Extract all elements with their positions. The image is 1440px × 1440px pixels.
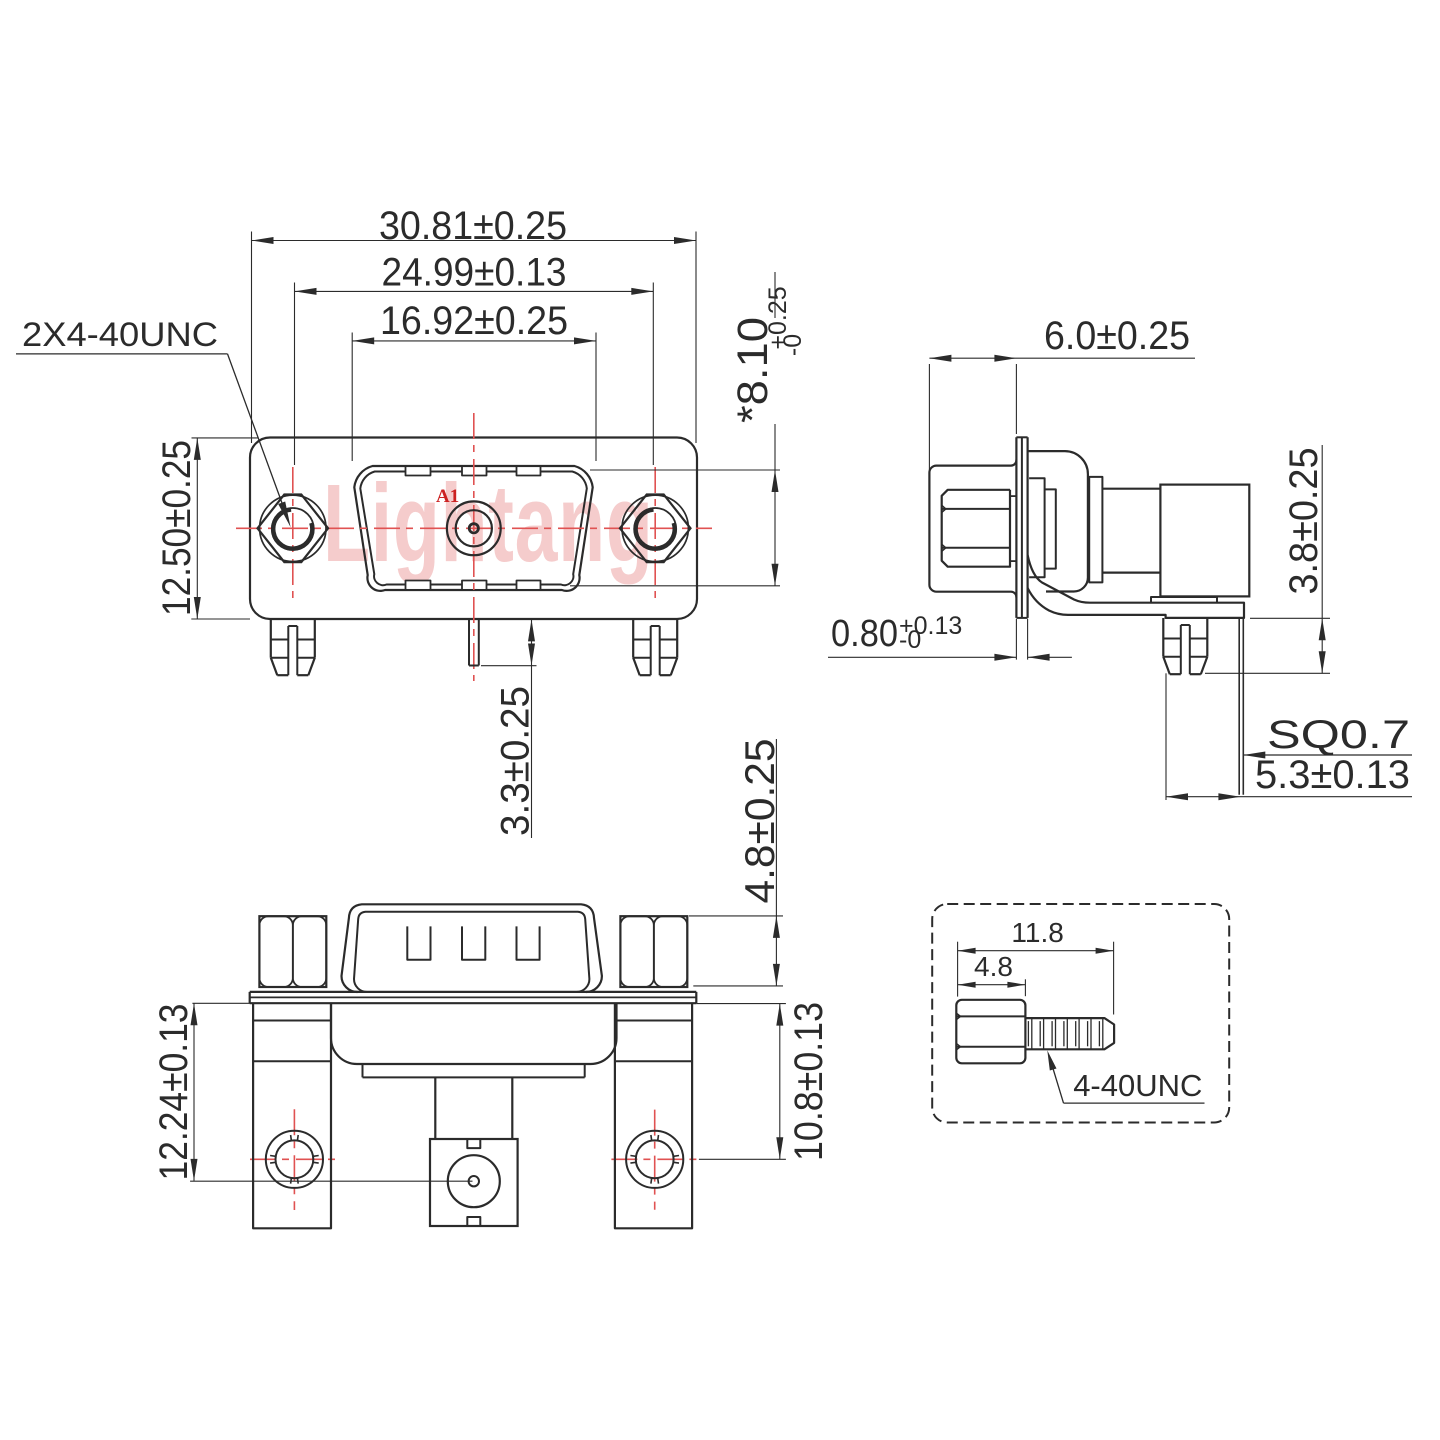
svg-text:-0: -0 <box>779 334 807 356</box>
svg-text:A1: A1 <box>436 486 459 507</box>
svg-text:16.92±0.25: 16.92±0.25 <box>380 299 568 343</box>
svg-text:0.80: 0.80 <box>831 613 898 655</box>
svg-text:30.81±0.25: 30.81±0.25 <box>379 204 567 248</box>
svg-text:SQ0.7: SQ0.7 <box>1267 713 1410 757</box>
svg-text:-0: -0 <box>899 626 921 654</box>
svg-text:4.8: 4.8 <box>974 951 1013 982</box>
svg-text:3.3±0.25: 3.3±0.25 <box>494 686 538 836</box>
svg-text:24.99±0.13: 24.99±0.13 <box>382 251 567 295</box>
svg-text:12.24±0.13: 12.24±0.13 <box>152 1004 196 1181</box>
svg-text:11.8: 11.8 <box>1011 917 1063 948</box>
svg-text:4.8±0.25: 4.8±0.25 <box>736 739 783 904</box>
svg-text:4-40UNC: 4-40UNC <box>1073 1068 1202 1103</box>
svg-text:3.8±0.25: 3.8±0.25 <box>1282 448 1326 595</box>
svg-text:6.0±0.25: 6.0±0.25 <box>1044 314 1190 358</box>
svg-text:12.50±0.25: 12.50±0.25 <box>155 440 199 616</box>
svg-text:10.8±0.13: 10.8±0.13 <box>787 1002 831 1161</box>
svg-text:5.3±0.13: 5.3±0.13 <box>1255 753 1410 797</box>
svg-text:2X4-40UNC: 2X4-40UNC <box>22 316 218 354</box>
